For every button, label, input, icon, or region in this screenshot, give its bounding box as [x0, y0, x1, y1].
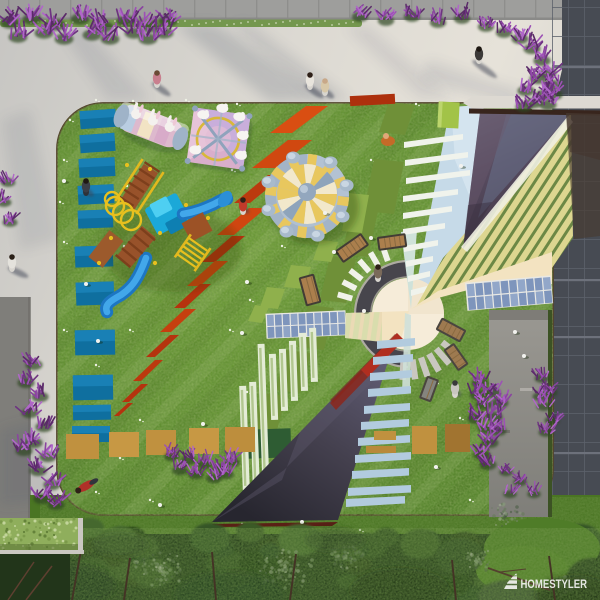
svg-text:HOMESTYLER: HOMESTYLER [521, 579, 588, 591]
